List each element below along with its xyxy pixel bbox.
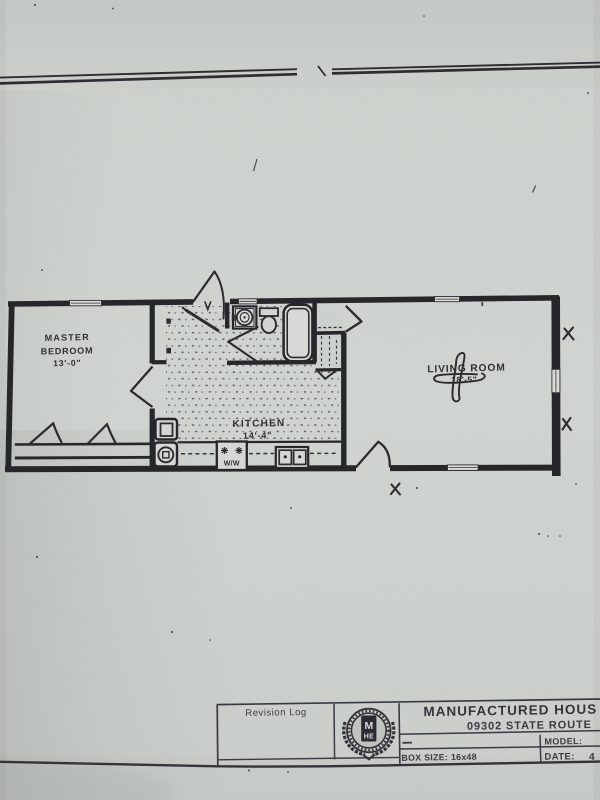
svg-text:HE: HE — [364, 734, 374, 741]
svg-text:13'-0": 13'-0" — [53, 358, 81, 369]
svg-text:BOX SIZE: 16x48: BOX SIZE: 16x48 — [401, 752, 477, 763]
svg-text:14'-4": 14'-4" — [243, 430, 272, 441]
svg-text:09302 STATE ROUTE: 09302 STATE ROUTE — [467, 719, 592, 733]
svg-text:M: M — [365, 720, 374, 732]
svg-text:MASTER: MASTER — [45, 332, 90, 343]
svg-text:MANUFACTURED HOUS: MANUFACTURED HOUS — [423, 702, 597, 720]
svg-text:KITCHEN: KITCHEN — [232, 418, 285, 430]
svg-text:BEDROOM: BEDROOM — [41, 345, 94, 356]
svg-text:W/W: W/W — [224, 461, 240, 468]
svg-text:DATE:: DATE: — [544, 751, 574, 762]
svg-text:MODEL:: MODEL: — [544, 736, 582, 747]
svg-text:Revision Log: Revision Log — [245, 707, 307, 719]
svg-text:4: 4 — [589, 752, 595, 763]
